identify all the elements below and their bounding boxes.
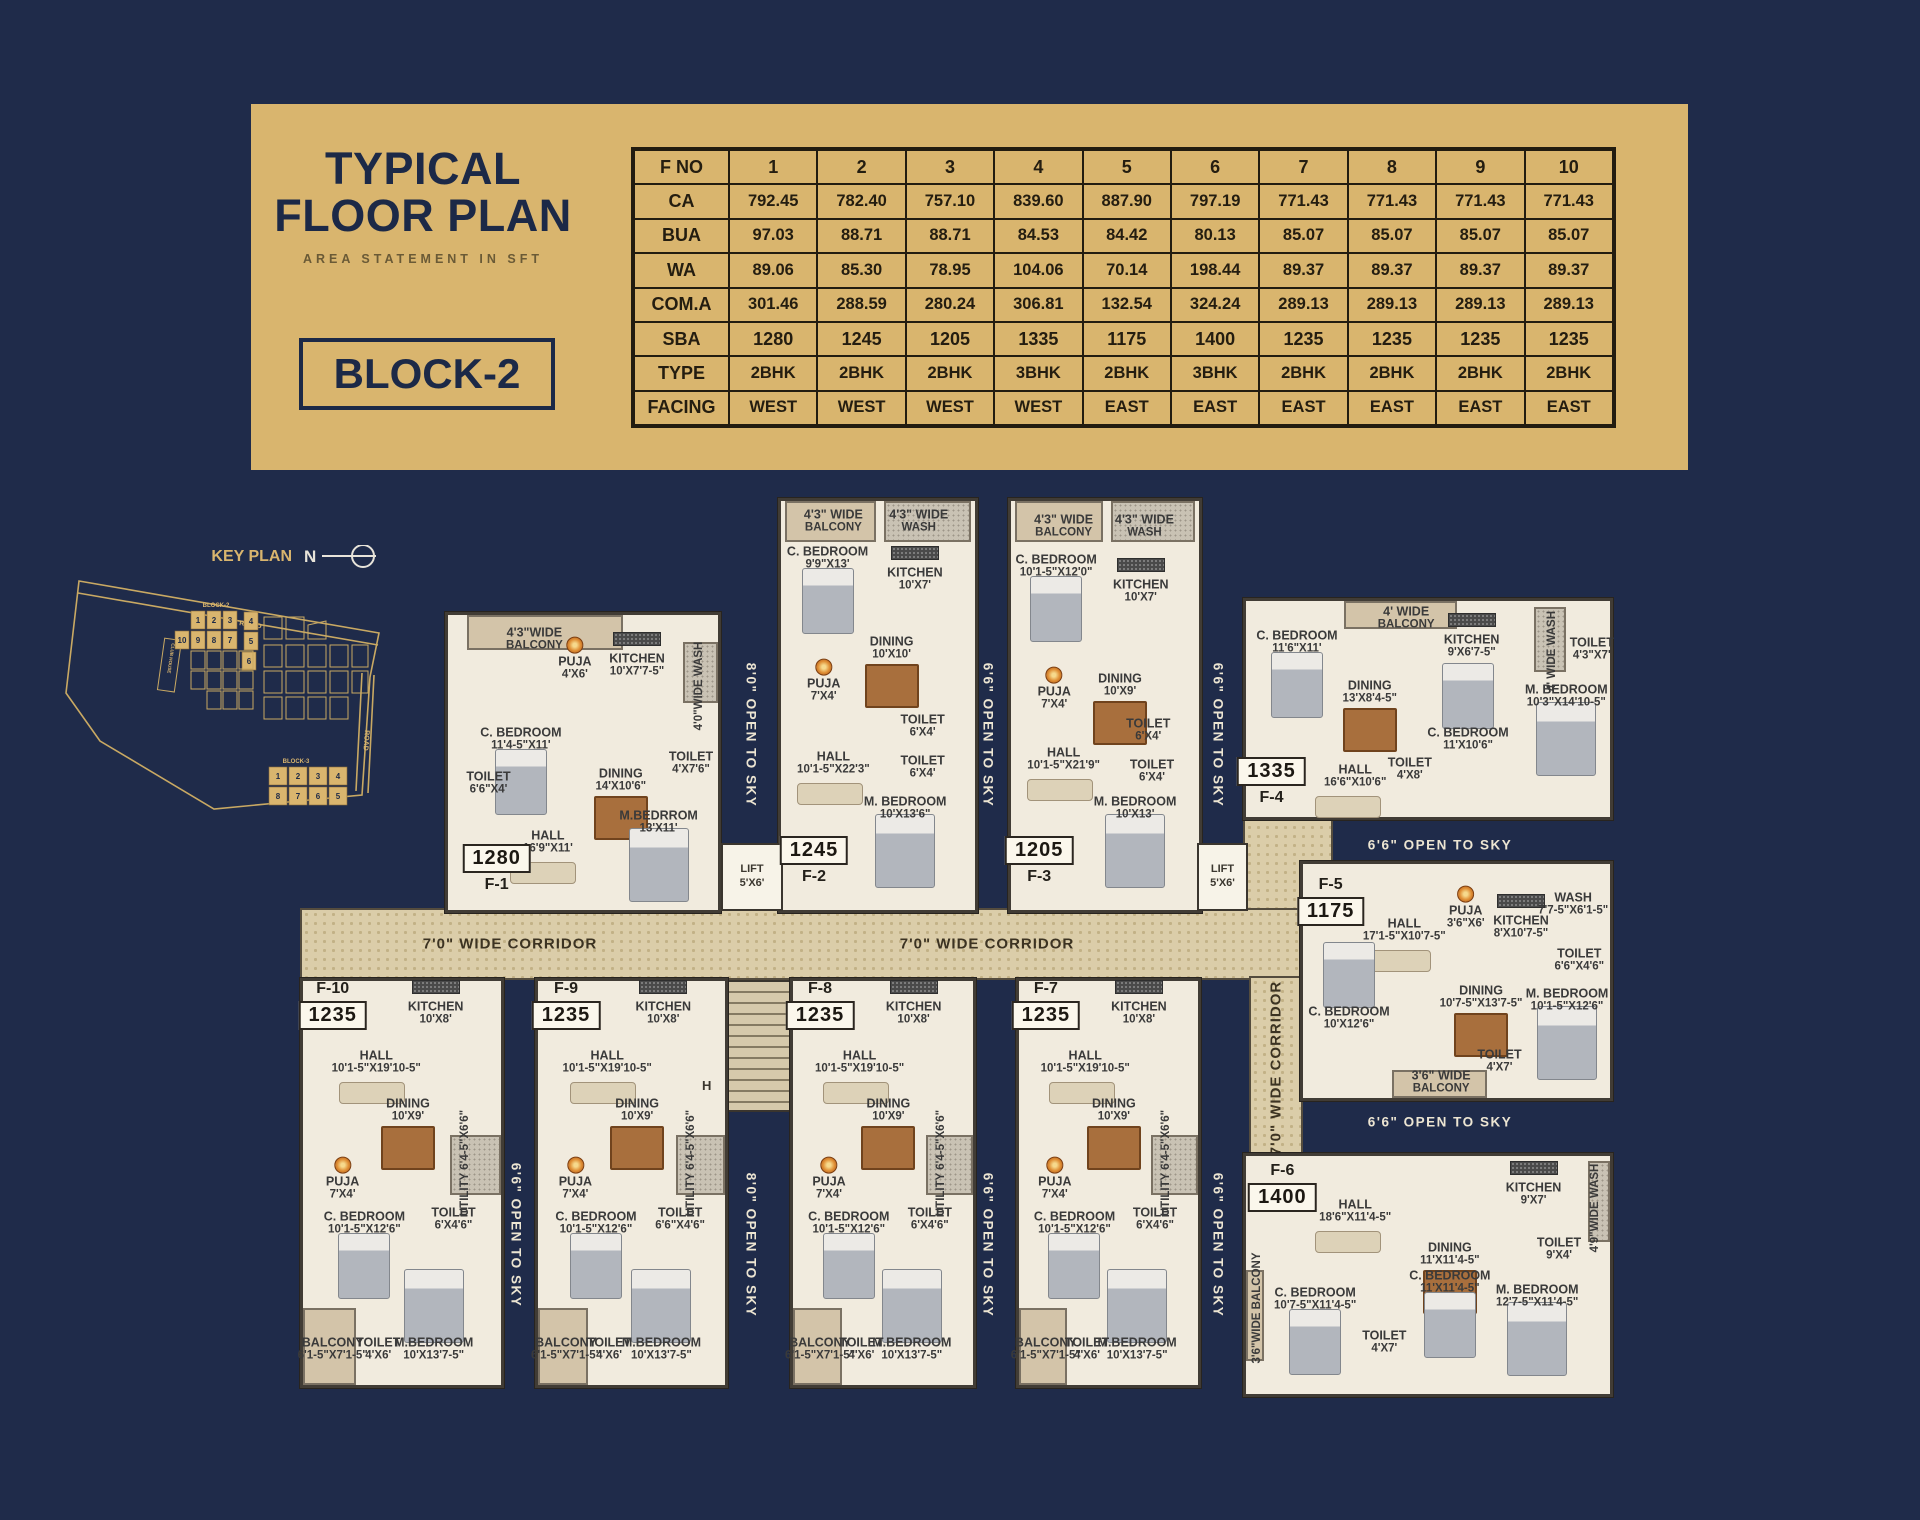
kitchen-counter-icon bbox=[1117, 558, 1165, 572]
room-name: DINING bbox=[1092, 1097, 1136, 1111]
room-name: TOILET bbox=[1537, 1235, 1581, 1249]
flat-badge: F-101235 bbox=[298, 980, 367, 1030]
room-dims: 10'X10' bbox=[872, 649, 911, 662]
room-label-toilet: TOILET6'6"X4' bbox=[466, 770, 510, 797]
flat-id: F-2 bbox=[802, 868, 826, 886]
flat-id: F-7 bbox=[1034, 980, 1058, 998]
kitchen-counter-icon bbox=[1115, 980, 1163, 994]
flat-sba: 1235 bbox=[298, 1001, 367, 1030]
room-name: PUJA bbox=[1038, 685, 1071, 699]
room-name: M.BEDROOM bbox=[1098, 1335, 1177, 1349]
room-name: C. BEDROOM bbox=[324, 1210, 405, 1224]
room-label-4-0-wide-wash: 4'0"WIDE WASH bbox=[693, 641, 705, 730]
room-dims: 10'X13'6" bbox=[880, 808, 931, 821]
room-name: M.BEDROOM bbox=[622, 1335, 701, 1349]
room-label-toilet: TOILET6'6"X4'6" bbox=[1554, 947, 1604, 974]
room-dims: 11'X10'6" bbox=[1443, 740, 1493, 753]
flat-f-1: 4'3"WIDEBALCONYPUJA4'X6'KITCHEN10'X7'7-5… bbox=[445, 612, 721, 913]
corridor-label: 7'0" WIDE CORRIDOR bbox=[423, 936, 598, 953]
room-label-c-bedroom: C. BEDROOM9'9"X13' bbox=[787, 545, 868, 572]
flat-sba: 1205 bbox=[1005, 836, 1074, 865]
room-dims: 18'6"X11'4-5" bbox=[1319, 1211, 1391, 1224]
kitchen-counter-icon bbox=[412, 980, 460, 994]
room-label-m-bedroom: M.BEDROOM10'X13'7-5" bbox=[872, 1335, 951, 1362]
room-label-c-bedroom: C. BEDROOM11'X11'4-5" bbox=[1409, 1269, 1490, 1296]
room-name: TOILET bbox=[1362, 1328, 1406, 1342]
room-dims: 7'X4' bbox=[330, 1189, 356, 1202]
room-name: KITCHEN bbox=[609, 652, 665, 666]
room-dims: 10'3"X14'10-5" bbox=[1527, 697, 1606, 710]
wash-strip bbox=[450, 1135, 501, 1196]
room-label-toilet: TOILET6'X4' bbox=[1130, 758, 1174, 785]
room-label-wash: WASH7'7-5"X6'1-5" bbox=[1538, 890, 1608, 917]
wash-strip bbox=[926, 1135, 973, 1196]
bed-icon bbox=[802, 568, 854, 634]
puja-icon bbox=[566, 637, 583, 654]
room-name: KITCHEN bbox=[886, 1000, 942, 1014]
room-dims: 6'6"X4' bbox=[470, 784, 508, 797]
room-dims: 4'X6' bbox=[562, 669, 588, 682]
bed-icon bbox=[629, 828, 689, 902]
room-dims: 7'X4' bbox=[811, 691, 837, 704]
flat-f-7: KITCHEN10'X8'HALL10'1-5"X19'10-5"DINING1… bbox=[1016, 978, 1201, 1388]
bed-icon bbox=[1536, 702, 1596, 776]
room-dims: BALCONY bbox=[1378, 619, 1435, 632]
room-dims: 10'1-5"X12'6" bbox=[812, 1224, 885, 1237]
room-label-kitchen: KITCHEN10'X8' bbox=[886, 1000, 942, 1027]
puja-icon bbox=[334, 1157, 351, 1174]
room-name: C. BEDROOM bbox=[1275, 1285, 1356, 1299]
room-name: TOILET bbox=[1557, 947, 1601, 961]
room-dims: BALCONY bbox=[506, 639, 563, 652]
lift-label: LIFT bbox=[740, 863, 763, 877]
lift-dims: 5'X6' bbox=[1210, 877, 1235, 891]
room-name: M. BEDROOM bbox=[1526, 986, 1609, 1000]
corridor-label: 7'0" WIDE CORRIDOR bbox=[1268, 980, 1285, 1155]
room-dims: 4'X7' bbox=[1371, 1342, 1397, 1355]
room-dims: 16'6"X10'6" bbox=[1324, 777, 1386, 790]
room-label-m-bedroom: M. BEDROOM12'7-5"X11'4-5" bbox=[1496, 1283, 1579, 1310]
room-label-4-9-wide-wash: 4'9"WIDE WASH bbox=[1589, 1164, 1601, 1253]
flat-f-6: HALL18'6"X11'4-5"DINING11'X11'4-5"KITCHE… bbox=[1243, 1153, 1613, 1397]
room-name: KITCHEN bbox=[1111, 1000, 1167, 1014]
room-label-toilet: TOILET4'3"X7' bbox=[1570, 635, 1614, 662]
room-label-4-3-wide: 4'3" WIDEBALCONY bbox=[1034, 512, 1093, 539]
room-name: TOILET bbox=[1133, 1206, 1177, 1220]
corridor-vertical: 7'0" WIDE CORRIDOR bbox=[1249, 976, 1303, 1159]
wash-strip bbox=[676, 1135, 725, 1196]
room-label-dining: DINING10'X9' bbox=[386, 1097, 430, 1124]
flat-sba: 1400 bbox=[1248, 1183, 1317, 1212]
room-dims: 6'X4'6" bbox=[435, 1220, 473, 1233]
room-dims: 12'7-5"X11'4-5" bbox=[1496, 1297, 1578, 1310]
room-name: BALCONY bbox=[302, 1335, 364, 1349]
room-label-dining: DINING13'X8'4-5" bbox=[1343, 678, 1397, 705]
room-name: TOILET bbox=[901, 753, 945, 767]
room-name: DINING bbox=[1348, 678, 1392, 692]
sofa-icon bbox=[1315, 796, 1381, 818]
flat-f-5: HALL17'1-5"X10'7-5"PUJA3'6"X6'KITCHEN8'X… bbox=[1300, 861, 1613, 1101]
flat-badge: 1245F-2 bbox=[780, 836, 849, 886]
flat-id: F-6 bbox=[1270, 1162, 1294, 1180]
room-name: TOILET bbox=[1130, 758, 1174, 772]
bed-icon bbox=[1030, 576, 1082, 642]
room-label-4-wide: 4' WIDEBALCONY bbox=[1378, 605, 1435, 632]
room-label-dining: DINING14'X10'6" bbox=[596, 767, 647, 794]
room-name: PUJA bbox=[326, 1175, 359, 1189]
room-label-puja: PUJA7'X4' bbox=[559, 1157, 592, 1202]
room-label-utility-6-4-5-x6-6: UTILITY 6'4-5"X6'6" bbox=[935, 1110, 947, 1216]
open-to-sky-label: 6'6" OPEN TO SKY bbox=[1211, 1173, 1226, 1317]
room-dims: 11'6"X11' bbox=[1272, 643, 1321, 656]
room-label-4-3-wide: 4'3" WIDEWASH bbox=[889, 508, 948, 535]
bed-icon bbox=[338, 1233, 390, 1299]
bed-icon bbox=[1105, 814, 1165, 888]
room-name: HALL bbox=[1339, 763, 1372, 777]
room-dims: 7'X4' bbox=[562, 1189, 588, 1202]
room-label-kitchen: KITCHEN10'X7' bbox=[1113, 578, 1169, 605]
room-label-puja: PUJA4'X6' bbox=[558, 637, 591, 682]
room-name: C. BEDROOM bbox=[1409, 1269, 1490, 1283]
room-label-kitchen: KITCHEN10'X7' bbox=[887, 565, 943, 592]
room-name: DINING bbox=[599, 767, 643, 781]
sofa-icon bbox=[1027, 779, 1093, 801]
room-dims: BALCONY bbox=[805, 522, 862, 535]
room-name: DINING bbox=[386, 1097, 430, 1111]
room-dims: 10'X7'7-5" bbox=[610, 666, 664, 679]
bed-icon bbox=[1323, 942, 1375, 1008]
room-dims: 10'1-5"X21'9" bbox=[1027, 759, 1100, 772]
bed-icon bbox=[1442, 663, 1494, 729]
corridor-label: 7'0" WIDE CORRIDOR bbox=[900, 936, 1075, 953]
room-dims: 4'X7'6" bbox=[672, 763, 710, 776]
flat-id: F-8 bbox=[808, 980, 832, 998]
room-dims: 8'X10'7-5" bbox=[1494, 928, 1548, 941]
room-label-hall: HALL10'1-5"X21'9" bbox=[1027, 745, 1100, 772]
puja-icon bbox=[1457, 886, 1474, 903]
flat-id: F-3 bbox=[1027, 868, 1051, 886]
bed-icon bbox=[1424, 1292, 1476, 1358]
room-name: TOILET bbox=[1570, 635, 1614, 649]
flat-badge: 1205F-3 bbox=[1005, 836, 1074, 886]
corridor-horizontal: 7'0" WIDE CORRIDOR 7'0" WIDE CORRIDOR bbox=[300, 908, 1303, 980]
room-label-4-wide-wash: 4' WIDE WASH bbox=[1546, 611, 1558, 691]
room-label-c-bedroom: C. BEDROOM10'1-5"X12'6" bbox=[1034, 1210, 1115, 1237]
room-name: PUJA bbox=[558, 655, 591, 669]
room-dims: 4'X8' bbox=[1397, 770, 1423, 783]
room-dims: 10'X9' bbox=[392, 1111, 424, 1124]
dining-table-icon bbox=[610, 1126, 664, 1170]
room-dims: 10'X8' bbox=[419, 1014, 451, 1027]
flat-badge: 1335F-4 bbox=[1237, 757, 1306, 807]
room-dims: 10'X13'7-5" bbox=[1107, 1349, 1168, 1362]
room-name: C. BEDROOM bbox=[1308, 1005, 1389, 1019]
room-name: M. BEDROOM bbox=[1525, 683, 1608, 697]
lift-label: LIFT bbox=[1211, 863, 1234, 877]
room-name: C. BEDROOM bbox=[555, 1210, 636, 1224]
room-label-toilet: TOILET6'X4' bbox=[901, 753, 945, 780]
room-label-4-3-wide: 4'3"WIDEBALCONY bbox=[506, 625, 563, 652]
puja-icon bbox=[821, 1157, 838, 1174]
room-label-3-6-wide: 3'6" WIDEBALCONY bbox=[1412, 1068, 1471, 1095]
flat-sba: 1245 bbox=[780, 836, 849, 865]
room-name: KITCHEN bbox=[1506, 1181, 1562, 1195]
room-label-c-bedroom: C. BEDROOM10'1-5"X12'6" bbox=[555, 1210, 636, 1237]
room-dims: BALCONY bbox=[1413, 1082, 1470, 1095]
room-dims: 9'X7' bbox=[1521, 1195, 1547, 1208]
room-label-puja: PUJA7'X4' bbox=[812, 1157, 845, 1202]
room-label-kitchen: KITCHEN8'X10'7-5" bbox=[1493, 914, 1549, 941]
room-dims: 10'1-5"X12'6" bbox=[560, 1224, 633, 1237]
room-label-toilet: TOILET4'X7'6" bbox=[669, 749, 713, 776]
staircase bbox=[722, 980, 792, 1112]
kitchen-counter-icon bbox=[890, 980, 938, 994]
room-name: C. BEDROOM bbox=[1034, 1210, 1115, 1224]
room-dims: 6'X4' bbox=[910, 767, 936, 780]
bed-icon bbox=[1289, 1309, 1341, 1375]
bed-icon bbox=[823, 1233, 875, 1299]
room-dims: 3'6"X6' bbox=[1447, 918, 1485, 931]
room-dims: 13'X8'4-5" bbox=[1343, 692, 1397, 705]
room-label-hall: HALL10'1-5"X19'10-5" bbox=[563, 1048, 652, 1075]
flat-sba: 1235 bbox=[1012, 1001, 1081, 1030]
bed-icon bbox=[1107, 1269, 1167, 1343]
room-label-dining: DINING10'7-5"X13'7-5" bbox=[1440, 984, 1523, 1011]
room-label-dining: DINING10'X10' bbox=[870, 635, 914, 662]
room-dims: 10'1-5"X19'10-5" bbox=[332, 1062, 421, 1075]
room-name: KITCHEN bbox=[1444, 633, 1500, 647]
open-to-sky-label: 6'6" OPEN TO SKY bbox=[1368, 1115, 1512, 1130]
flat-sba: 1235 bbox=[786, 1001, 855, 1030]
room-dims: 10'X13'7-5" bbox=[403, 1349, 464, 1362]
room-label-4-3-wide: 4'3" WIDEWASH bbox=[1115, 512, 1174, 539]
room-label-hall: HALL17'1-5"X10'7-5" bbox=[1363, 916, 1446, 943]
room-dims: WASH bbox=[1127, 526, 1162, 539]
puja-icon bbox=[567, 1157, 584, 1174]
room-dims: 6'6"X4'6" bbox=[655, 1220, 705, 1233]
flat-sba: 1235 bbox=[532, 1001, 601, 1030]
room-name: 4' WIDE bbox=[1383, 605, 1429, 619]
room-label-c-bedroom: C. BEDROOM10'7-5"X11'4-5" bbox=[1274, 1285, 1356, 1312]
room-dims: 10'X9' bbox=[1104, 686, 1136, 699]
room-dims: 10'X9' bbox=[1098, 1111, 1130, 1124]
room-name: TOILET bbox=[431, 1206, 475, 1220]
room-dims: 6'X4' bbox=[1139, 772, 1165, 785]
room-label-toilet: TOILET4'X7' bbox=[1477, 1047, 1521, 1074]
flat-f-2: 4'3" WIDEBALCONY4'3" WIDEWASHC. BEDROOM9… bbox=[778, 498, 978, 913]
room-dims: 11'X11'4-5" bbox=[1420, 1254, 1480, 1267]
room-name: TOILET bbox=[1126, 717, 1170, 731]
room-name: 4'3" WIDE bbox=[1115, 512, 1174, 526]
room-dims: 13'X11' bbox=[640, 822, 678, 835]
open-to-sky-label: 6'6" OPEN TO SKY bbox=[981, 1173, 996, 1317]
puja-icon bbox=[815, 659, 832, 676]
room-name: HALL bbox=[591, 1048, 624, 1062]
flat-badge: F-91235 bbox=[532, 980, 601, 1030]
room-dims: 10'X7' bbox=[899, 579, 931, 592]
room-name: C. BEDROOM bbox=[1256, 629, 1337, 643]
room-label-toilet: TOILET6'X4' bbox=[1126, 717, 1170, 744]
flat-id: F-9 bbox=[554, 980, 578, 998]
room-name: PUJA bbox=[1449, 904, 1482, 918]
room-name: DINING bbox=[615, 1097, 659, 1111]
room-dims: WASH bbox=[901, 522, 936, 535]
flat-id: F-1 bbox=[485, 876, 509, 894]
room-name: HALL bbox=[1047, 745, 1080, 759]
room-name: 3'6" WIDE bbox=[1412, 1068, 1471, 1082]
room-dims: 4'3"X7' bbox=[1573, 649, 1611, 662]
room-label-kitchen: KITCHEN9'X6'7-5" bbox=[1444, 633, 1500, 660]
room-dims: 6'X4'6" bbox=[911, 1220, 949, 1233]
open-to-sky-label: 8'0" OPEN TO SKY bbox=[744, 1173, 759, 1317]
bed-icon bbox=[1537, 1006, 1597, 1080]
room-name: PUJA bbox=[559, 1175, 592, 1189]
kitchen-counter-icon bbox=[891, 546, 939, 560]
room-label-toilet: TOILET6'X4'6" bbox=[908, 1206, 952, 1233]
room-label-m-bedroom: M.BEDROOM10'X13'7-5" bbox=[622, 1335, 701, 1362]
room-label-dining: DINING10'X9' bbox=[1092, 1097, 1136, 1124]
room-label-puja: PUJA7'X4' bbox=[326, 1157, 359, 1202]
room-name: HALL bbox=[1069, 1048, 1102, 1062]
room-label-toilet: TOILET9'X4' bbox=[1537, 1235, 1581, 1262]
stair-label: H bbox=[702, 1078, 711, 1093]
room-dims: 11'X11'4-5" bbox=[1420, 1283, 1480, 1296]
room-label-m-bedroom: M. BEDROOM10'X13' bbox=[1094, 794, 1177, 821]
room-name: WASH bbox=[1554, 890, 1592, 904]
room-label-utility-6-4-5-x6-6: UTILITY 6'4-5"X6'6" bbox=[685, 1110, 697, 1216]
room-dims: 10'X9' bbox=[621, 1111, 653, 1124]
wash-strip bbox=[1151, 1135, 1198, 1196]
room-name: PUJA bbox=[807, 677, 840, 691]
room-label-dining: DINING11'X11'4-5" bbox=[1420, 1240, 1480, 1267]
room-dims: 10'1-5"X12'6" bbox=[1038, 1224, 1111, 1237]
room-dims: 10'1-5"X12'0" bbox=[1020, 567, 1093, 580]
room-dims: 10'X13'7-5" bbox=[631, 1349, 692, 1362]
kitchen-counter-icon bbox=[1510, 1161, 1558, 1175]
room-label-m-bedroom: M. BEDROOM10'3"X14'10-5" bbox=[1525, 683, 1608, 710]
room-label-hall: HALL18'6"X11'4-5" bbox=[1319, 1197, 1391, 1224]
flat-id: F-10 bbox=[316, 980, 349, 998]
room-dims: 10'1-5"X19'10-5" bbox=[1041, 1062, 1130, 1075]
room-name: DINING bbox=[1098, 672, 1142, 686]
bed-icon bbox=[631, 1269, 691, 1343]
dining-table-icon bbox=[381, 1126, 435, 1170]
room-name: DINING bbox=[1459, 984, 1503, 998]
puja-icon bbox=[1046, 1157, 1063, 1174]
room-label-kitchen: KITCHEN10'X8' bbox=[636, 1000, 692, 1027]
room-name: DINING bbox=[1428, 1240, 1472, 1254]
room-dims: 10'7-5"X11'4-5" bbox=[1274, 1299, 1356, 1312]
room-label-c-bedroom: C. BEDROOM11'4-5"X11' bbox=[480, 725, 561, 752]
room-name: TOILET bbox=[658, 1206, 702, 1220]
room-label-puja: PUJA7'X4' bbox=[807, 659, 840, 704]
bed-icon bbox=[882, 1269, 942, 1343]
open-to-sky-label: 6'6" OPEN TO SKY bbox=[1368, 838, 1512, 853]
room-dims: 10'X13'7-5" bbox=[881, 1349, 942, 1362]
room-dims: 17'1-5"X10'7-5" bbox=[1363, 930, 1446, 943]
room-label-utility-6-4-5-x6-6: UTILITY 6'4-5"X6'6" bbox=[1160, 1110, 1172, 1216]
dining-table-icon bbox=[865, 664, 919, 708]
room-label-m-bedrrom: M.BEDRROM13'X11' bbox=[619, 808, 697, 835]
room-label-c-bedroom: C. BEDROOM10'1-5"X12'6" bbox=[808, 1210, 889, 1237]
room-name: TOILET bbox=[1477, 1047, 1521, 1061]
room-dims: 10'1-5"X19'10-5" bbox=[563, 1062, 652, 1075]
room-label-toilet: TOILET4'X7' bbox=[1362, 1328, 1406, 1355]
room-dims: BALCONY bbox=[1035, 526, 1092, 539]
room-dims: 9'X4' bbox=[1546, 1249, 1572, 1262]
room-name: C. BEDROOM bbox=[1427, 726, 1508, 740]
room-name: KITCHEN bbox=[887, 565, 943, 579]
room-name: 4'3" WIDE bbox=[1034, 512, 1093, 526]
room-label-hall: HALL10'1-5"X22'3" bbox=[797, 749, 870, 776]
room-name: DINING bbox=[867, 1097, 911, 1111]
room-dims: 9'X6'7-5" bbox=[1448, 647, 1496, 660]
room-name: M.BEDROOM bbox=[394, 1335, 473, 1349]
sofa-icon bbox=[1315, 1231, 1381, 1253]
room-label-dining: DINING10'X9' bbox=[615, 1097, 659, 1124]
room-dims: 6'6"X4'6" bbox=[1554, 961, 1604, 974]
room-name: 4'3" WIDE bbox=[889, 508, 948, 522]
room-label-toilet: TOILET6'X4'6" bbox=[1133, 1206, 1177, 1233]
room-name: M. BEDROOM bbox=[864, 794, 947, 808]
flat-f-9: KITCHEN10'X8'HALL10'1-5"X19'10-5"DINING1… bbox=[535, 978, 728, 1388]
flat-f-4: C. BEDROOM11'6"X11'4' WIDEBALCONYKITCHEN… bbox=[1243, 598, 1613, 820]
room-label-kitchen: KITCHEN10'X8' bbox=[1111, 1000, 1167, 1027]
room-name: HALL bbox=[1388, 916, 1421, 930]
room-label-3-6-wide-balcony: 3'6"WIDE BALCONY bbox=[1251, 1253, 1263, 1364]
room-name: TOILET bbox=[908, 1206, 952, 1220]
room-label-c-bedroom: C. BEDROOM11'6"X11' bbox=[1256, 629, 1337, 656]
room-dims: 10'1-5"X19'10-5" bbox=[815, 1062, 904, 1075]
room-dims: 7'X4' bbox=[1041, 699, 1067, 712]
room-label-dining: DINING10'X9' bbox=[1098, 672, 1142, 699]
room-dims: 6'X4' bbox=[910, 727, 936, 740]
room-label-m-bedroom: M. BEDROOM10'1-5"X12'6" bbox=[1526, 986, 1609, 1013]
room-label-dining: DINING10'X9' bbox=[867, 1097, 911, 1124]
room-name: HALL bbox=[817, 749, 850, 763]
lift: LIFT5'X6' bbox=[721, 843, 783, 911]
room-dims: 10'X8' bbox=[1123, 1014, 1155, 1027]
room-dims: 10'7-5"X13'7-5" bbox=[1440, 998, 1523, 1011]
room-label-kitchen: KITCHEN10'X7'7-5" bbox=[609, 652, 665, 679]
room-name: TOILET bbox=[669, 749, 713, 763]
room-label-puja: PUJA7'X4' bbox=[1038, 667, 1071, 712]
flat-f-8: KITCHEN10'X8'HALL10'1-5"X19'10-5"DINING1… bbox=[790, 978, 976, 1388]
room-dims: 4'X6' bbox=[848, 1349, 874, 1362]
flat-badge: F-61400 bbox=[1248, 1162, 1317, 1212]
room-name: M.BEDRROM bbox=[619, 808, 697, 822]
room-name: KITCHEN bbox=[636, 1000, 692, 1014]
room-name: HALL bbox=[360, 1048, 393, 1062]
room-label-m-bedroom: M.BEDROOM10'X13'7-5" bbox=[1098, 1335, 1177, 1362]
room-label-kitchen: KITCHEN9'X7' bbox=[1506, 1181, 1562, 1208]
floor-plan: 7'0" WIDE CORRIDOR 7'0" WIDE CORRIDOR 7'… bbox=[0, 0, 1920, 1520]
flat-f-3: 4'3" WIDEBALCONY4'3" WIDEWASHC. BEDROOM1… bbox=[1008, 498, 1202, 913]
room-name: 4'3"WIDE bbox=[507, 625, 562, 639]
room-label-hall: HALL10'1-5"X19'10-5" bbox=[815, 1048, 904, 1075]
room-dims: 4'X7' bbox=[1487, 1061, 1513, 1074]
room-label-m-bedroom: M.BEDROOM10'X13'7-5" bbox=[394, 1335, 473, 1362]
room-name: C. BEDROOM bbox=[787, 545, 868, 559]
sofa-icon bbox=[1365, 950, 1431, 972]
sofa-icon bbox=[797, 783, 863, 805]
flat-f-10: KITCHEN10'X8'HALL10'1-5"X19'10-5"DINING1… bbox=[300, 978, 504, 1388]
room-dims: 7'X4' bbox=[1042, 1189, 1068, 1202]
room-dims: 9'9"X13' bbox=[805, 559, 849, 572]
lift: LIFT5'X6' bbox=[1197, 843, 1248, 911]
room-name: M. BEDROOM bbox=[1094, 794, 1177, 808]
room-label-m-bedroom: M. BEDROOM10'X13'6" bbox=[864, 794, 947, 821]
